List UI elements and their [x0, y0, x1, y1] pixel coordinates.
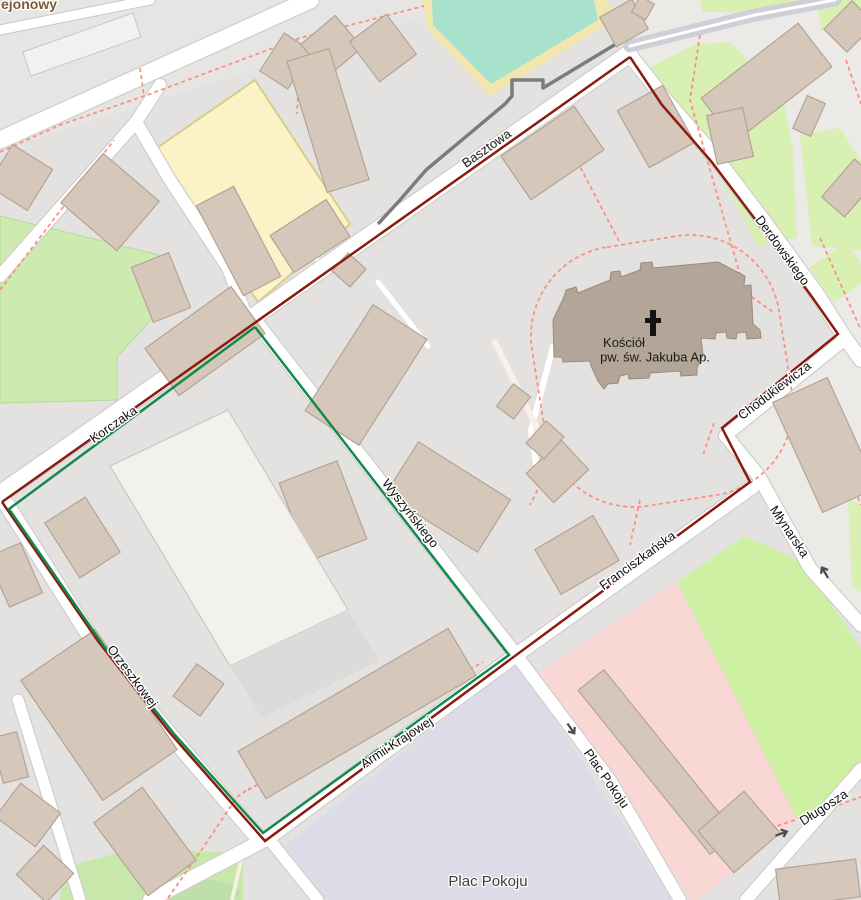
svg-text:Kościół: Kościół — [603, 335, 645, 350]
svg-text:Plac Pokoju: Plac Pokoju — [448, 873, 527, 890]
svg-text:pw. św. Jakuba Ap.: pw. św. Jakuba Ap. — [600, 350, 710, 365]
svg-text:ejonowy: ejonowy — [1, 0, 57, 12]
